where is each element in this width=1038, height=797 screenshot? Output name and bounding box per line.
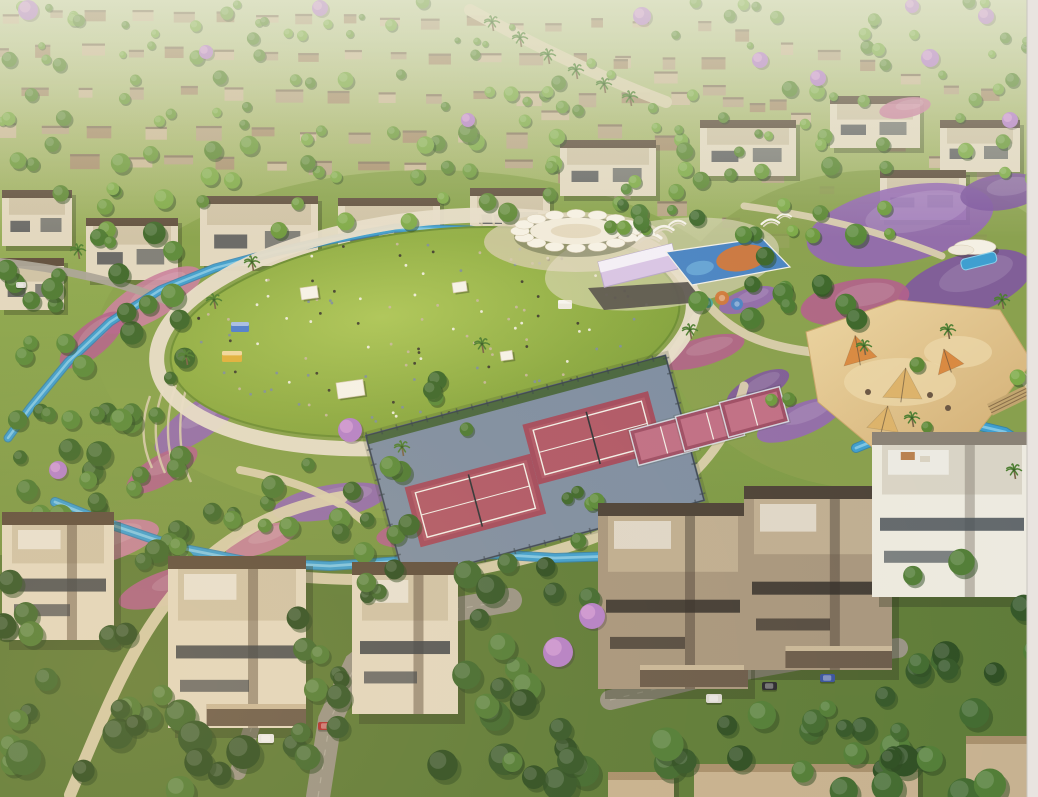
scene-canvas: [0, 0, 1038, 797]
aerial-community-render: [0, 0, 1038, 797]
atmosphere: [0, 0, 1038, 797]
warm-light-overlay: [0, 0, 1038, 797]
right-edge-strip: [1027, 0, 1038, 797]
